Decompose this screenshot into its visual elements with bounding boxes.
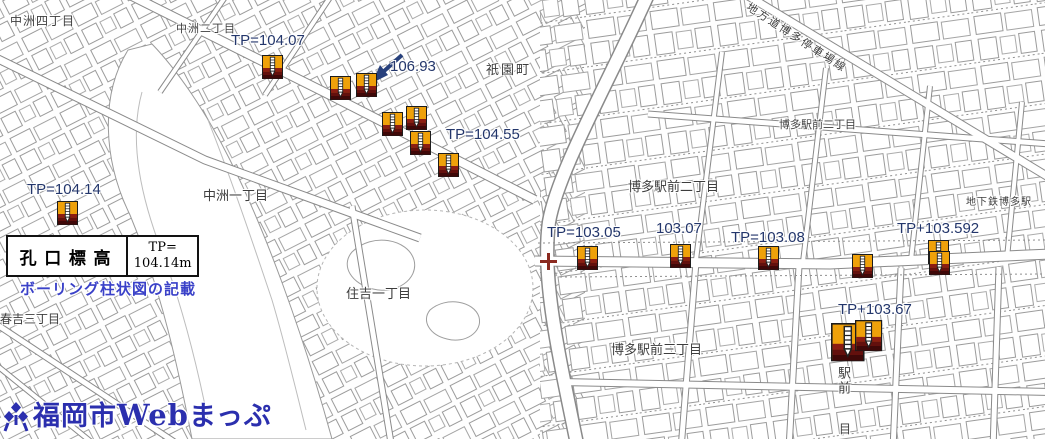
elevation-label: TP=103.05 bbox=[547, 225, 621, 240]
borehole-marker[interactable] bbox=[57, 201, 78, 225]
logo-suffix-text: まっぷ bbox=[189, 401, 272, 431]
borehole-icon bbox=[410, 131, 431, 155]
place-label: 博多駅前二丁目 bbox=[628, 180, 719, 193]
borehole-icon bbox=[855, 320, 882, 351]
borehole-icon bbox=[406, 106, 427, 130]
place-label: 春吉三丁目 bbox=[0, 313, 60, 325]
logo-web-text: Web bbox=[117, 398, 189, 432]
place-label: 駅前 bbox=[837, 366, 850, 396]
place-label: 博多駅前二丁目 bbox=[779, 120, 856, 131]
legend-value-line2: 104.14m bbox=[134, 256, 192, 272]
place-label: 住吉一丁目 bbox=[346, 287, 411, 300]
borehole-marker[interactable] bbox=[356, 73, 377, 97]
borehole-icon bbox=[57, 201, 78, 225]
borehole-icon bbox=[577, 246, 598, 270]
borehole-marker[interactable] bbox=[929, 251, 950, 275]
elevation-label: TP+103.67 bbox=[838, 302, 912, 317]
legend-value-line1: TP= bbox=[149, 240, 177, 256]
elevation-label: TP=103.08 bbox=[731, 230, 805, 245]
borehole-marker[interactable] bbox=[438, 153, 459, 177]
legend-note: ボーリング柱状図の記載 bbox=[20, 278, 196, 299]
logo-city-text: 福岡市 bbox=[33, 401, 117, 431]
borehole-marker[interactable] bbox=[406, 106, 427, 130]
elevation-label: TP=104.07 bbox=[231, 33, 305, 48]
borehole-marker[interactable] bbox=[855, 320, 882, 351]
elevation-label: TP+103.592 bbox=[897, 221, 979, 236]
legend-value: TP= 104.14m bbox=[128, 237, 197, 275]
legend-heading: 孔口標高 bbox=[8, 237, 128, 275]
map-stage[interactable]: 孔口標高 TP= 104.14m ボーリング柱状図の記載 福岡市Webまっぷ 中… bbox=[0, 0, 1045, 439]
legend-table: 孔口標高 TP= 104.14m bbox=[6, 235, 199, 277]
place-label: 中洲四丁目 bbox=[10, 15, 75, 27]
app-logo[interactable]: 福岡市Webまっぷ bbox=[2, 401, 272, 433]
borehole-marker[interactable] bbox=[852, 254, 873, 278]
borehole-icon bbox=[758, 246, 779, 270]
borehole-icon bbox=[330, 76, 351, 100]
borehole-icon bbox=[438, 153, 459, 177]
borehole-marker[interactable] bbox=[330, 76, 351, 100]
borehole-icon bbox=[852, 254, 873, 278]
borehole-icon bbox=[262, 55, 283, 79]
elevation-label: TP=104.14 bbox=[27, 182, 101, 197]
borehole-marker[interactable] bbox=[410, 131, 431, 155]
fukuoka-city-emblem-icon bbox=[2, 401, 30, 433]
place-label: 博多駅前三丁目 bbox=[611, 343, 702, 356]
place-label: 地下鉄博多駅 bbox=[966, 198, 1032, 208]
borehole-marker[interactable] bbox=[577, 246, 598, 270]
place-label: 目 bbox=[839, 423, 851, 435]
borehole-icon bbox=[356, 73, 377, 97]
place-label: 中洲一丁目 bbox=[203, 189, 268, 202]
elevation-label: TP=104.55 bbox=[446, 127, 520, 142]
elevation-label: 106.93 bbox=[390, 59, 436, 74]
borehole-marker[interactable] bbox=[382, 112, 403, 136]
borehole-marker[interactable] bbox=[758, 246, 779, 270]
app-logo-text: 福岡市Webまっぷ bbox=[33, 401, 272, 430]
survey-cross-icon bbox=[539, 252, 558, 271]
place-label: 中洲二丁目 bbox=[176, 24, 236, 35]
borehole-icon bbox=[670, 244, 691, 268]
borehole-marker[interactable] bbox=[670, 244, 691, 268]
borehole-icon bbox=[382, 112, 403, 136]
place-label: 祇園町 bbox=[486, 63, 531, 76]
elevation-label: 103.07 bbox=[656, 221, 702, 236]
borehole-marker[interactable] bbox=[262, 55, 283, 79]
borehole-icon bbox=[929, 251, 950, 275]
